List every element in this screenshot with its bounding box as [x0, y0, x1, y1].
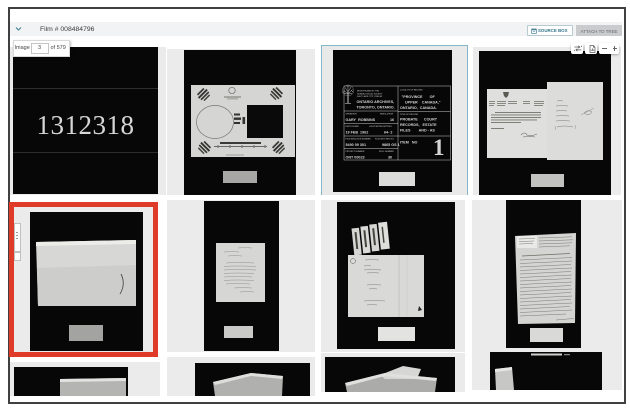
svg-text:19 FEB 1962: 19 FEB 1962 [346, 131, 369, 135]
svg-text:LIGHT METER SETTING: LIGHT METER SETTING [369, 126, 392, 128]
svg-text:1: 1 [433, 135, 445, 160]
svg-text:SALT LAKE CITY, UTAH AT: SALT LAKE CITY, UTAH AT [357, 95, 383, 98]
svg-text:GARY ROBBINS: GARY ROBBINS [346, 118, 376, 122]
svg-text:64- 2: 64- 2 [384, 131, 392, 135]
svg-text:OPERATOR: OPERATOR [346, 113, 358, 116]
svg-text:FILES AND - AS: FILES AND - AS [400, 129, 435, 133]
svg-text:GENEALOGICAL SOCIETY: GENEALOGICAL SOCIETY [357, 92, 383, 95]
svg-text:FILM EMULSION NUMBER: FILM EMULSION NUMBER [346, 139, 372, 141]
svg-text:ROLL NUMBER: ROLL NUMBER [379, 151, 394, 153]
svg-text:PROJECT NUMBER: PROJECT NUMBER [346, 151, 365, 153]
svg-text:RECORDS, ESTATE: RECORDS, ESTATE [400, 123, 437, 127]
svg-text:UPPER CANADA,": UPPER CANADA," [405, 101, 441, 105]
svg-text:ONTARIO ARCHIVES,: ONTARIO ARCHIVES, [357, 100, 395, 104]
svg-text:RESOLUTION: RESOLUTION [380, 114, 394, 116]
svg-text:5490 09 301: 5490 09 301 [346, 143, 367, 147]
svg-text:"PROVINCE OF: "PROVINCE OF [402, 95, 436, 99]
svg-text:TITLE OF RECORD: TITLE OF RECORD [400, 114, 419, 116]
svg-text:ONTARIO, CANADA.: ONTARIO, CANADA. [400, 106, 437, 110]
svg-text:DATE FILMED: DATE FILMED [346, 125, 360, 128]
svg-text:TORONTO, ONTARIO.: TORONTO, ONTARIO. [357, 105, 395, 109]
svg-text:16: 16 [390, 118, 394, 122]
svg-text:MICROFILMED BY THE: MICROFILMED BY THE [357, 91, 380, 93]
svg-text:PROBATE COURT: PROBATE COURT [400, 118, 438, 122]
svg-text:ONT 00023: ONT 00023 [346, 156, 365, 160]
svg-text:30: 30 [388, 156, 392, 160]
svg-text:ITEM NO: ITEM NO [400, 141, 418, 145]
svg-text:9865 GS 1: 9865 GS 1 [382, 143, 400, 147]
svg-text:LOCALITY OF RECORD: LOCALITY OF RECORD [400, 89, 423, 92]
svg-text:FILM UNIT SER. NO.: FILM UNIT SER. NO. [375, 139, 395, 141]
